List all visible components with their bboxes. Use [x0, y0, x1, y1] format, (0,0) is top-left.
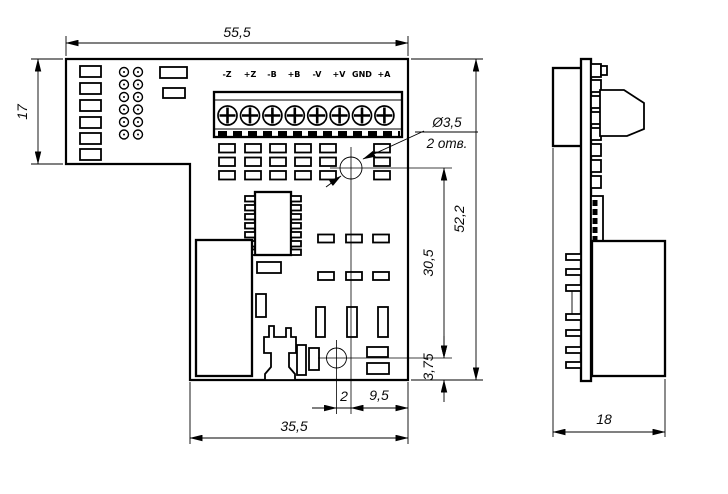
pcb-edge	[581, 59, 591, 381]
dim-label-top-width: 55,5	[223, 24, 250, 40]
ic-side	[591, 196, 603, 243]
smd-pad	[257, 262, 281, 273]
terminal-block-side	[553, 68, 582, 146]
side-view: 18	[553, 59, 665, 437]
terminal-label: -V	[313, 70, 323, 79]
terminal-label: -B	[267, 70, 276, 79]
capacitor	[297, 345, 306, 375]
terminal-entry-profile	[600, 90, 644, 136]
dim-hole-offsets-bottom: 2 9,5	[312, 382, 408, 444]
dim-label-depth: 18	[596, 411, 612, 427]
smd-pads-lower-right	[367, 347, 389, 374]
relay-side	[592, 241, 665, 376]
terminal-block	[214, 92, 402, 137]
dim-label-hole-right-offset: 9,5	[369, 387, 389, 403]
ic-chip	[245, 192, 301, 255]
via-grid	[120, 68, 143, 140]
terminal-label: +B	[288, 70, 301, 79]
dim-left-height: 17	[14, 59, 63, 164]
dim-label-hole-bottom-offset: 3,75	[420, 353, 436, 380]
front-view: -Z +Z -B +B -V +V GND +A	[14, 24, 483, 444]
solder-pins	[566, 254, 581, 368]
dim-label-hole-span: 30,5	[420, 249, 436, 276]
smd-pad	[256, 294, 266, 317]
hole-diameter-label: Ø3,5	[431, 115, 462, 130]
terminal-label: +Z	[244, 70, 257, 79]
terminal-labels: -Z +Z -B +B -V +V GND +A	[222, 70, 391, 79]
pcb-dimension-drawing: -Z +Z -B +B -V +V GND +A	[0, 0, 728, 494]
dim-hole-bottom-offset: 3,75	[420, 336, 444, 402]
terminal-label: +A	[378, 70, 392, 79]
smd-component-grid	[316, 235, 389, 338]
terminal-label: GND	[352, 70, 372, 79]
dim-label-hole-x-offset: 2	[339, 388, 348, 404]
resistor-pad-array	[219, 144, 390, 180]
terminal-label: +V	[333, 70, 347, 79]
dim-label-left-height: 17	[14, 103, 30, 120]
dim-hole-span: 30,5	[420, 168, 444, 358]
hole-count-label: 2 отв.	[426, 136, 468, 151]
relay-body	[196, 240, 252, 376]
pad-column	[80, 66, 101, 160]
dim-label-bottom-width: 35,5	[280, 418, 307, 434]
terminal-label: -Z	[222, 70, 231, 79]
capacitor	[309, 348, 319, 370]
dim-label-right-height: 52,2	[451, 205, 467, 232]
smd-pads-top	[160, 67, 187, 98]
technical-drawing-page: -Z +Z -B +B -V +V GND +A	[0, 0, 728, 494]
dim-top-width: 55,5	[66, 24, 408, 56]
transistor	[264, 326, 296, 380]
dim-right-height: 52,2	[411, 59, 483, 380]
